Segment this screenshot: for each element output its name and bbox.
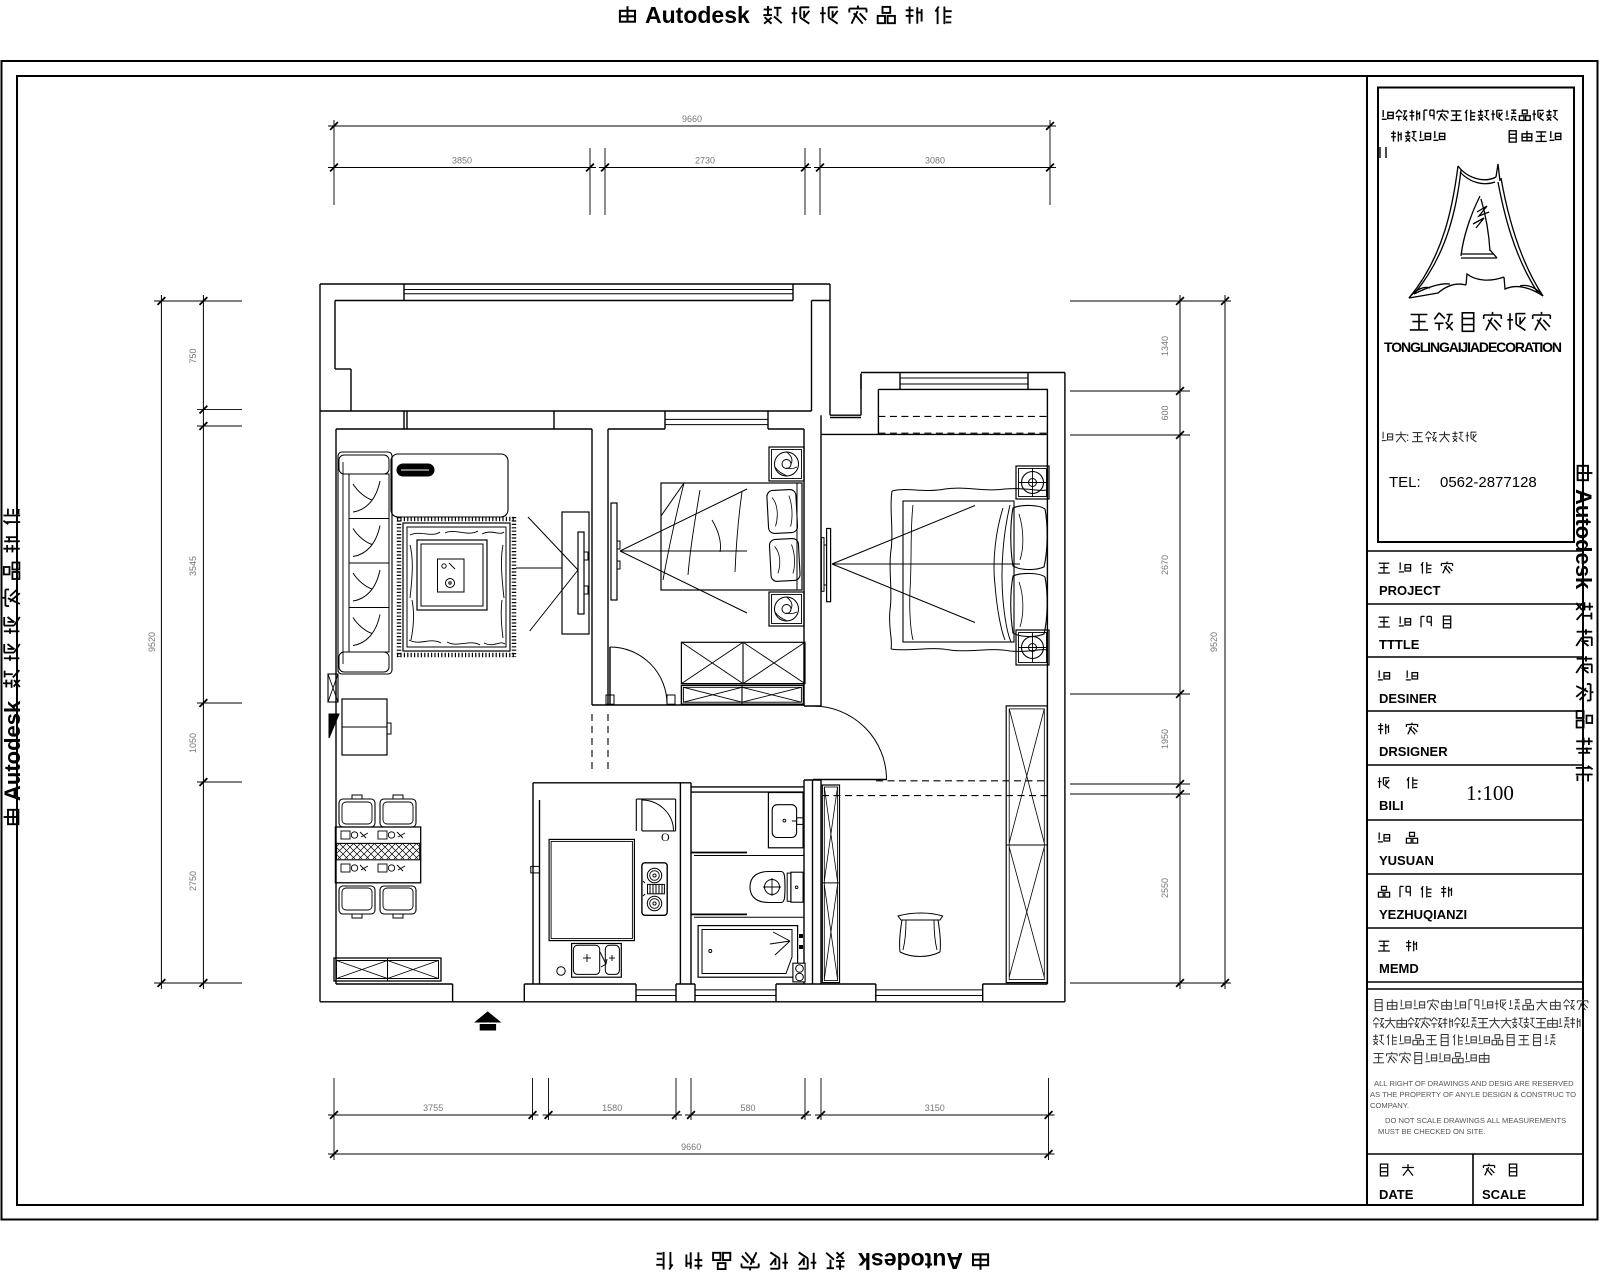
svg-text:O: O	[661, 830, 670, 844]
svg-text:750: 750	[188, 348, 198, 363]
svg-text:9660: 9660	[682, 114, 702, 124]
svg-text:Autodesk: Autodesk	[858, 1248, 963, 1274]
svg-text:2730: 2730	[695, 156, 715, 166]
svg-text:2550: 2550	[1160, 878, 1170, 898]
svg-text:3080: 3080	[925, 156, 945, 166]
svg-text:TONGLINGAIJIADECORATION: TONGLINGAIJIADECORATION	[1384, 339, 1562, 355]
svg-text:2670: 2670	[1160, 555, 1170, 575]
svg-text:3150: 3150	[925, 1103, 945, 1113]
svg-text:3850: 3850	[452, 156, 472, 166]
svg-text:600: 600	[1160, 405, 1170, 420]
svg-text:AS THE PROPERTY OF ANYLE DESIG: AS THE PROPERTY OF ANYLE DESIGN & CONSTR…	[1370, 1090, 1576, 1099]
svg-text:YUSUAN: YUSUAN	[1379, 853, 1434, 868]
svg-text:0562-2877128: 0562-2877128	[1440, 474, 1537, 491]
svg-text:Autodesk: Autodesk	[0, 700, 25, 801]
svg-text:DRSIGNER: DRSIGNER	[1379, 744, 1448, 759]
svg-text:580: 580	[740, 1103, 755, 1113]
svg-text:MUST BE CHECKED ON SITE.: MUST BE CHECKED ON SITE.	[1378, 1127, 1485, 1136]
svg-text:3545: 3545	[188, 556, 198, 576]
svg-text:ALL RIGHT OF DRAWINGS AND DESI: ALL RIGHT OF DRAWINGS AND DESIG ARE RESE…	[1374, 1079, 1574, 1088]
svg-text:1:100: 1:100	[1466, 781, 1514, 805]
svg-text:1580: 1580	[602, 1103, 622, 1113]
svg-text:1950: 1950	[1160, 729, 1170, 749]
svg-text:DESINER: DESINER	[1379, 691, 1437, 706]
svg-text::: :	[1406, 430, 1409, 444]
svg-text:9520: 9520	[1209, 632, 1219, 652]
svg-text:1050: 1050	[188, 733, 198, 753]
svg-text:COMPANY.: COMPANY.	[1370, 1101, 1409, 1110]
svg-text:3755: 3755	[423, 1103, 443, 1113]
svg-text:DATE: DATE	[1379, 1187, 1414, 1202]
svg-text:Autodesk: Autodesk	[645, 2, 750, 28]
svg-text:1340: 1340	[1160, 336, 1170, 356]
svg-text:YEZHUQIANZI: YEZHUQIANZI	[1379, 907, 1467, 922]
svg-text:SCALE: SCALE	[1482, 1187, 1526, 1202]
svg-text:9660: 9660	[681, 1142, 701, 1152]
svg-text:PROJECT: PROJECT	[1379, 583, 1440, 598]
svg-text:BILI: BILI	[1379, 798, 1404, 813]
svg-text:9520: 9520	[147, 632, 157, 652]
svg-text:DO NOT SCALE DRAWINGS ALL MEAS: DO NOT SCALE DRAWINGS ALL MEASUREMENTS	[1385, 1116, 1566, 1125]
svg-text:MEMD: MEMD	[1379, 961, 1419, 976]
svg-text:2750: 2750	[188, 871, 198, 891]
svg-text:TEL:: TEL:	[1389, 474, 1421, 491]
svg-text:TTTLE: TTTLE	[1379, 637, 1420, 652]
